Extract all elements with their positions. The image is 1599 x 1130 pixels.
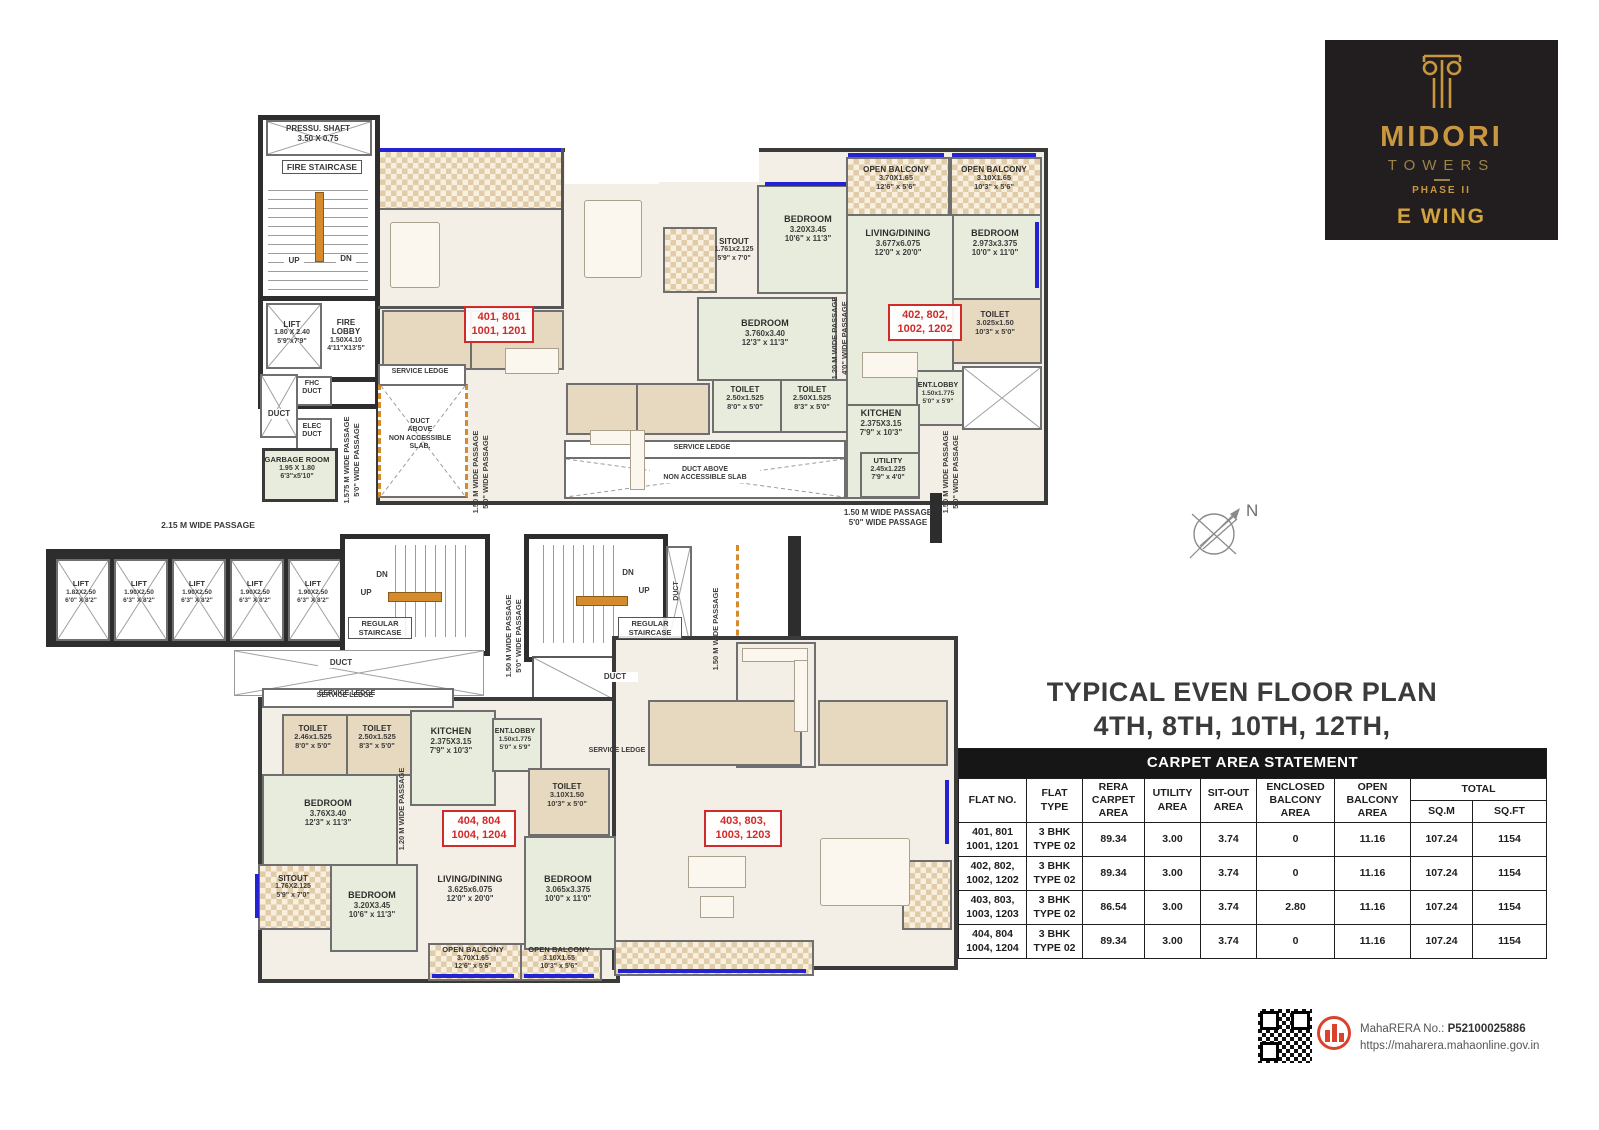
lift-5-label: LIFT 1.90X2.50 6'3" X 8'2" — [286, 580, 340, 604]
passage-150-h-label: 1.50 M WIDE PASSAGE5'0" WIDE PASSAGE — [840, 508, 936, 527]
col-utility: UTILITY AREA — [1145, 779, 1201, 823]
bedroom-404a-label: BEDROOM 3.76X3.40 12'3" x 11'3" — [280, 798, 376, 827]
stairs-dn-label: DN — [336, 254, 356, 264]
stairs-dn-label: DN — [372, 570, 392, 580]
toilet-cell — [648, 700, 802, 766]
logo-wing: E WING — [1325, 205, 1558, 229]
qr-code — [1256, 1007, 1314, 1065]
col-sqft: SQ.FT — [1473, 801, 1547, 823]
compass-n: N — [1246, 501, 1258, 520]
passage-120-label: 1.20 M WIDE PASSAGE4'0" WIDE PASSAGE — [826, 294, 854, 382]
ent-lobby-404-label: ENT.LOBBY 1.50x1.775 5'0" x 5'9" — [488, 728, 542, 752]
toilet-404b-label: TOILET 2.50x1.525 8'3" x 5'0" — [346, 724, 408, 751]
sofa-furniture — [688, 856, 746, 888]
hatch-edge-marker — [736, 545, 739, 645]
lift-1-label: LIFT 1.82X2.50 6'0" X 8'2" — [54, 580, 108, 604]
maharera-number: P52100025886 — [1448, 1023, 1526, 1035]
column-icon — [1410, 52, 1474, 114]
table-title: CARPET AREA STATEMENT — [959, 749, 1547, 779]
lift-main-label: LIFT 1.80 X 2.40 5'9"x7'9" — [264, 320, 320, 346]
bedroom-404b-label: BEDROOM 3.20X3.45 10'6" x 11'3" — [330, 890, 414, 919]
bedroom-402-label: BEDROOM 2.973x3.375 10'0" x 11'0" — [954, 228, 1036, 257]
passage-120-label: 1.20 M WIDE PASSAGE — [395, 767, 409, 851]
living-404-label: LIVING/DINING 3.625x6.075 12'0" x 20'0" — [424, 874, 516, 903]
col-total: TOTAL — [1411, 779, 1547, 801]
stairs-dn-label: DN — [618, 568, 638, 578]
stairs-up-label: UP — [634, 586, 654, 596]
wing-notch — [565, 144, 659, 184]
balcony-404b-label: OPEN BALCONY 3.10X1.65 10'3" x 5'6" — [518, 946, 600, 971]
kitchen-404-label: KITCHEN 2.375X3.15 7'9" x 10'3" — [412, 726, 490, 755]
dining-table-furniture — [505, 348, 559, 374]
pressu-shaft-label: PRESSU. SHAFT3.50 X 0.75 — [270, 124, 366, 143]
stairs-up-label: UP — [284, 256, 304, 266]
window-marker — [524, 974, 594, 978]
regular-staircase-1-label: REGULARSTAIRCASE — [348, 617, 412, 639]
fire-lobby-label: FIRE LOBBY 1.50X4.10 4'11"X13'5" — [322, 318, 370, 353]
sitout-401-label: SITOUT 1.761x2.125 5'9" x 7'0" — [700, 237, 768, 263]
wing-notch — [659, 144, 759, 182]
table-furniture — [700, 896, 734, 918]
duct-large-label: DUCT — [592, 672, 638, 682]
wall-segment — [561, 148, 564, 308]
carpet-area-table: CARPET AREA STATEMENT FLAT NO. FLAT TYPE… — [958, 748, 1547, 959]
flat-401-number: 401, 8011001, 1201 — [464, 306, 534, 343]
maharera-info: MahaRERA No.: P52100025886 https://mahar… — [1360, 1021, 1539, 1054]
table-row: 404, 8041004, 1204 3 BHKTYPE 02 89.343.0… — [959, 925, 1547, 959]
lift-3-label: LIFT 1.90X2.50 6'3" X 8'2" — [170, 580, 224, 604]
passage-150-label: 1.50 M WIDE PASSAGE5'0" WIDE PASSAGE — [500, 590, 528, 682]
maharera-url: https://maharera.mahaonline.gov.in — [1360, 1038, 1539, 1055]
fire-staircase-label: FIRE STAIRCASE — [282, 160, 362, 174]
bedroom-401a-label: BEDROOM 3.20X3.45 10'6" x 11'3" — [762, 214, 854, 243]
col-enclosed: ENCLOSED BALCONY AREA — [1257, 779, 1335, 823]
staircase-2-treads — [534, 545, 620, 643]
flat-404-number: 404, 8041004, 1204 — [442, 810, 516, 847]
kitchen-counter-furniture — [630, 430, 645, 490]
duct-left-label: DUCT — [262, 409, 296, 419]
balcony-402b-label: OPEN BALCONY 3.10X1.65 10'3" x 5'6" — [952, 165, 1036, 192]
window-marker — [945, 780, 949, 844]
logo-brand: MIDORI — [1325, 121, 1558, 154]
passage-150-label: 1.50 M WIDE PASSAGE — [709, 585, 723, 673]
toilet-401a-label: TOILET 2.50x1.525 8'0" x 5'0" — [712, 385, 778, 412]
duct-above-mid-label: DUCT ABOVENON ACCESSIBLE SLAB — [650, 466, 760, 483]
service-ledge-label: SERVICE LEDGE — [380, 368, 460, 376]
toilet-401b-label: TOILET 2.50X1.525 8'3" x 5'0" — [780, 385, 844, 412]
ent-lobby-402-label: ENT.LOBBY 1.50x1.775 5'0" x 5'9" — [912, 382, 964, 406]
wall-segment — [788, 536, 801, 644]
bed-furniture — [390, 222, 440, 288]
col-flat-type: FLAT TYPE — [1027, 779, 1083, 823]
passage-1575-label: 1.575 M WIDE PASSAGE5'0" WIDE PASSAGE — [338, 414, 366, 506]
window-marker — [618, 969, 806, 973]
stair-rail — [576, 596, 628, 606]
col-sitout: SIT-OUT AREA — [1201, 779, 1257, 823]
duct-shaft-label: DUCT — [670, 576, 684, 606]
toilet-402-label: TOILET 3.025x1.50 10'3" x 5'0" — [958, 310, 1032, 337]
window-marker — [255, 874, 259, 918]
balcony-404a-label: OPEN BALCONY 3.70X1.65 12'6" x 5'6" — [430, 946, 516, 971]
kitchen-counter-furniture — [794, 660, 808, 732]
window-marker — [952, 153, 1036, 157]
kitchen-402-label: KITCHEN 2.375X3.15 7'9" x 10'3" — [846, 408, 916, 437]
table-row: 402, 802,1002, 1202 3 BHKTYPE 02 89.343.… — [959, 857, 1547, 891]
duct-left — [260, 374, 298, 438]
maharera-badge-icon — [1317, 1016, 1351, 1050]
logo-sub: TOWERS — [1325, 157, 1558, 174]
living-402-label: LIVING/DINING 3.677x6.075 12'0" x 20'0" — [854, 228, 942, 257]
col-rera: RERA CARPET AREA — [1083, 779, 1145, 823]
kitchen-404 — [410, 710, 496, 806]
sitout-404-label: SITOUT 1.76X2.125 5'9" x 7'0" — [260, 874, 326, 900]
col-sqm: SQ.M — [1411, 801, 1473, 823]
project-logo: MIDORI TOWERS PHASE II E WING — [1325, 40, 1558, 240]
floor-plan-page: PRESSU. SHAFT3.50 X 0.75 FIRE STAIRCASE … — [0, 0, 1599, 1130]
flat-403-number: 403, 803,1003, 1203 — [704, 810, 782, 847]
col-open: OPEN BALCONY AREA — [1335, 779, 1411, 823]
window-marker — [380, 148, 562, 152]
elec-duct-label: ELECDUCT — [297, 423, 327, 440]
utility-402-label: UTILITY 2.45x1.225 7'9" x 4'0" — [860, 457, 916, 482]
toilet-404a-label: TOILET 2.46x1.525 8'0" x 5'0" — [282, 724, 344, 751]
window-marker — [432, 974, 514, 978]
service-ledge-402 — [962, 366, 1042, 430]
balcony-402a-label: OPEN BALCONY 3.70X1.65 12'6" x 5'6" — [850, 165, 942, 192]
stairs-up-label: UP — [356, 588, 376, 598]
toilet-403-label: TOILET 3.10X1.50 10'3" x 5'0" — [532, 782, 602, 809]
bed-furniture — [584, 200, 642, 278]
garbage-room-label: GARBAGE ROOM 1.95 X 1.80 6'3"x5'10" — [262, 456, 332, 481]
north-compass-icon: N — [1178, 498, 1264, 562]
stair-rail — [388, 592, 442, 602]
lift-4-label: LIFT 1.90X2.50 6'3" X 8'2" — [228, 580, 282, 604]
stair-rail — [315, 192, 324, 262]
table-row: 401, 8011001, 1201 3 BHKTYPE 02 89.343.0… — [959, 823, 1547, 857]
service-ledge-label: SERVICE LEDGE — [572, 747, 662, 755]
col-flat-no: FLAT NO. — [959, 779, 1027, 823]
window-marker — [765, 182, 849, 186]
passage-215-label: 2.15 M WIDE PASSAGE — [148, 520, 268, 530]
duct-band-label: DUCT — [318, 658, 364, 668]
passage-150-label: 1.50 M WIDE PASSAGE5'0" WIDE PASSAGE — [467, 426, 495, 518]
toilet-cell — [818, 700, 948, 766]
duct-above-left-label: DUCTABOVE NON ACCESSIBLESLAB. — [384, 418, 456, 452]
toilet-cell — [636, 383, 710, 435]
toilet-cell — [566, 383, 638, 435]
passage-150-label: 1.50 M WIDE PASSAGE5'0" WIDE PASSAGE — [937, 426, 965, 518]
regular-staircase-2-label: REGULARSTAIRCASE — [618, 617, 682, 639]
bedroom-403-label: BEDROOM 3.065x3.375 10'0" x 11'0" — [524, 874, 612, 903]
fhc-duct-label: FHCDUCT — [297, 380, 327, 397]
window-marker — [848, 153, 944, 157]
service-ledge-label: SERVICE LEDGE — [660, 444, 744, 452]
balcony-hatch-401 — [380, 152, 562, 210]
table-row: 403, 803,1003, 1203 3 BHKTYPE 02 86.543.… — [959, 891, 1547, 925]
service-ledge-label: SERVICE LEDGE — [312, 692, 378, 700]
lift-2-label: LIFT 1.90X2.50 6'3" X 8'2" — [112, 580, 166, 604]
logo-phase: PHASE II — [1325, 185, 1558, 196]
flat-402-number: 402, 802,1002, 1202 — [888, 304, 962, 341]
bedroom-401b-label: BEDROOM 3.760x3.40 12'3" x 11'3" — [710, 318, 820, 347]
logo-divider — [1434, 179, 1450, 181]
bed-furniture — [820, 838, 910, 906]
toilet-cell — [382, 310, 472, 370]
dining-table-furniture — [862, 352, 918, 378]
